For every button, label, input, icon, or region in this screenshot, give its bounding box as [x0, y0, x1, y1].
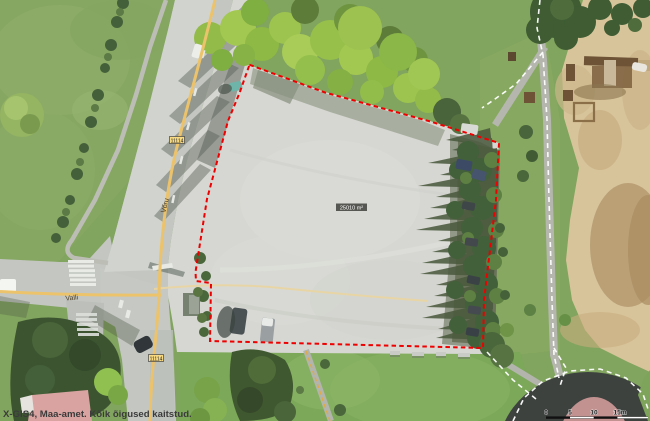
- svg-text:25010 m²: 25010 m²: [340, 206, 363, 212]
- svg-text:11114: 11114: [171, 138, 184, 144]
- svg-text:10: 10: [590, 410, 598, 417]
- svg-text:X-GIS4, Maa-amet. Kõik õigused: X-GIS4, Maa-amet. Kõik õigused kaitstud.: [3, 409, 192, 420]
- svg-text:5: 5: [568, 410, 572, 417]
- svg-text:11114: 11114: [150, 356, 163, 362]
- svg-text:Valli: Valli: [65, 294, 79, 302]
- svg-text:0: 0: [544, 410, 548, 417]
- svg-text:15m: 15m: [613, 410, 626, 417]
